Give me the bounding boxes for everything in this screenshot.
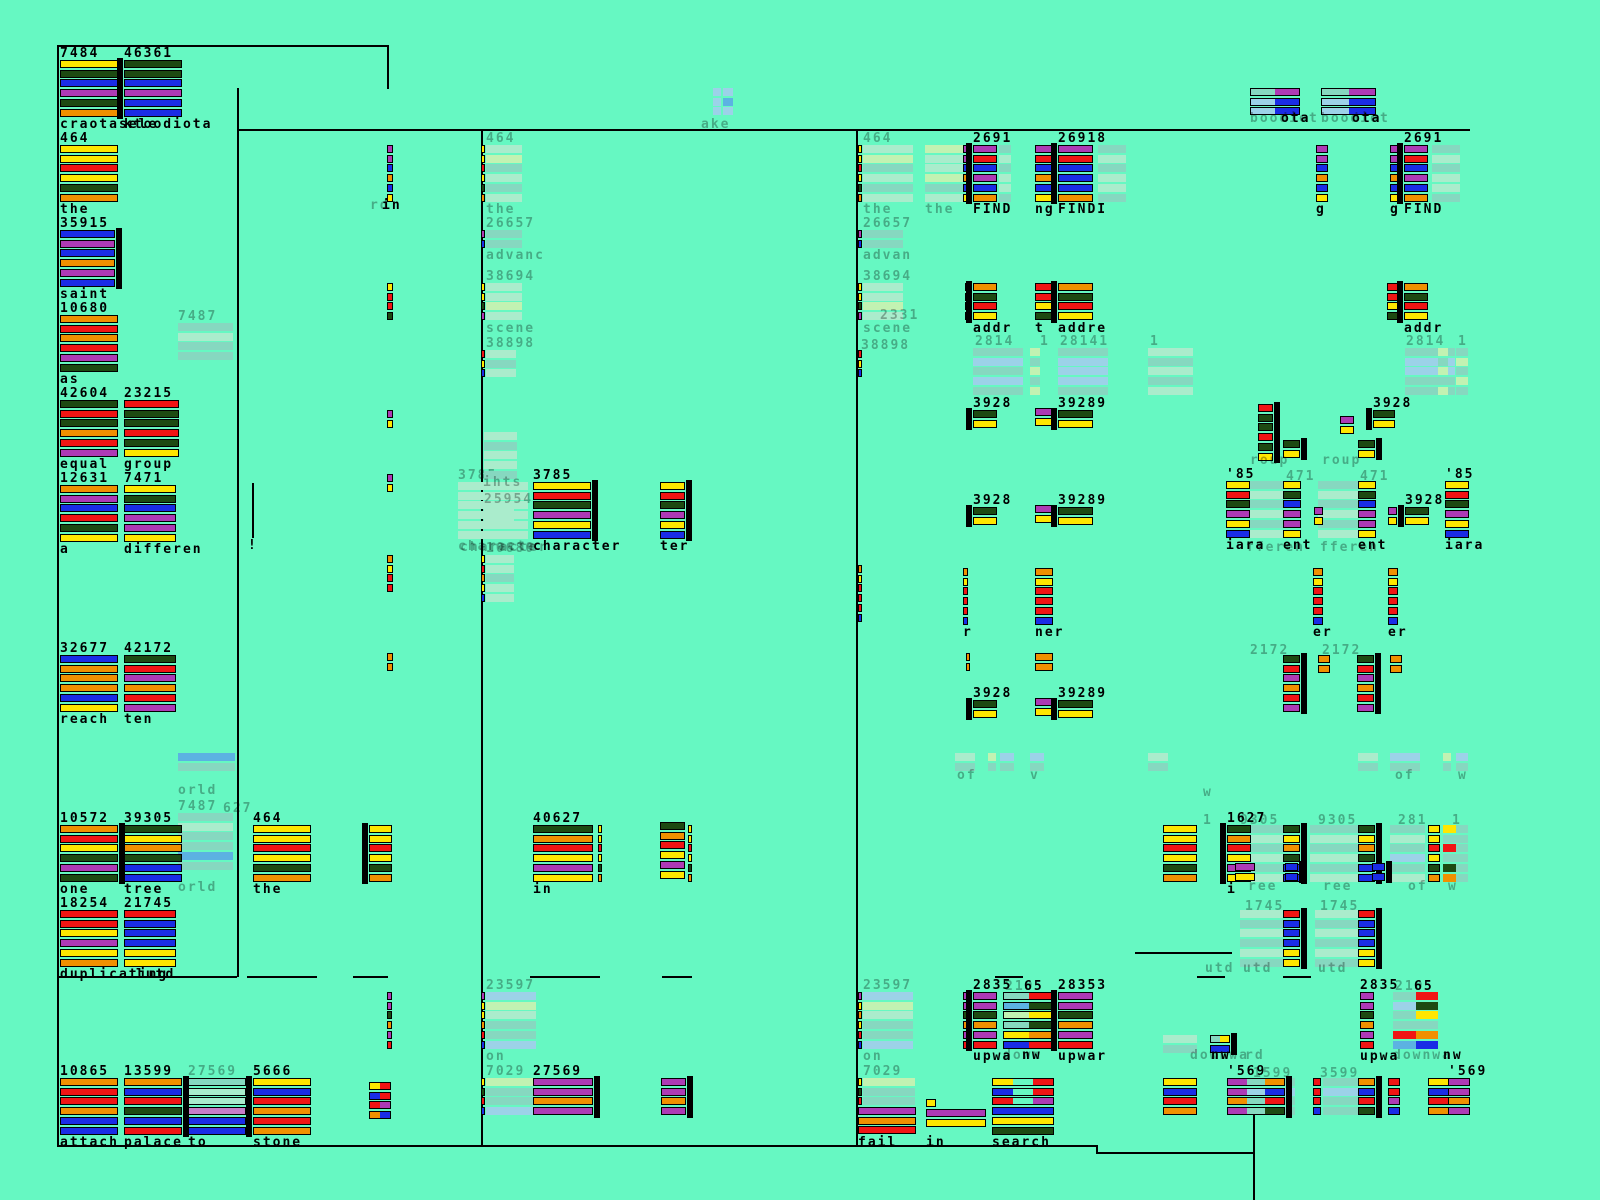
ghost-text: 1: [1458, 336, 1468, 347]
ghost-text: 281: [1398, 815, 1427, 826]
ghost-text: w: [1203, 787, 1213, 798]
ghost-text: 28141: [1060, 336, 1109, 347]
ghost-text: 1599: [1253, 1068, 1292, 1079]
text-label: nw: [1443, 1050, 1463, 1061]
text-label: !: [248, 540, 258, 551]
ghost-text: w: [1458, 770, 1468, 781]
ghost-text: 627: [223, 803, 252, 814]
ghost-text: of: [957, 770, 977, 781]
ghost-text: fferen: [1320, 542, 1379, 553]
texts-layer: rdinboodiototaboodiototaake233138898ihts…: [0, 0, 1600, 1200]
ghost-text: 2814: [975, 336, 1014, 347]
ghost-text: w: [1448, 881, 1458, 892]
ghost-text: 2172: [1322, 645, 1361, 656]
ghost-text: rd: [1245, 1050, 1265, 1061]
ghost-text: roup: [1322, 455, 1361, 466]
ghost-text: 9305: [1240, 815, 1279, 826]
text-label: nw: [1022, 1050, 1042, 1061]
text-label: 65: [1414, 981, 1434, 992]
ghost-text: roup: [1250, 455, 1289, 466]
ghost-text: utd: [1205, 963, 1234, 974]
ghost-text: 1745: [1320, 901, 1359, 912]
ghost-text: of: [1395, 770, 1415, 781]
text-label: nw: [1211, 1050, 1231, 1061]
text-label: 65: [1024, 981, 1044, 992]
ghost-text: 38898: [861, 340, 910, 351]
ghost-text: ree: [1248, 881, 1277, 892]
text-label: ota: [1352, 113, 1381, 124]
ghost-text: 1: [1452, 815, 1462, 826]
ghost-text: 1: [1150, 336, 1160, 347]
text-label: in: [382, 200, 402, 211]
ghost-text: 1: [1203, 815, 1213, 826]
ghost-text: 3599: [1320, 1068, 1359, 1079]
ghost-text: fferen: [1246, 542, 1305, 553]
ghost-text: ree: [1323, 881, 1352, 892]
ghost-text: 1: [1040, 336, 1050, 347]
ghost-text: 471: [1286, 471, 1315, 482]
ghost-text: utd: [1318, 963, 1347, 974]
ghost-text: ihts: [483, 477, 522, 488]
ghost-text: 2331: [880, 310, 919, 321]
ghost-text: 2814: [1406, 336, 1445, 347]
ghost-text: 2172: [1250, 645, 1289, 656]
word-card-collage: 3785characte464the26657advanc38694scene3…: [0, 0, 1600, 1200]
text-label: ota: [1281, 113, 1310, 124]
ghost-text: character: [460, 542, 548, 553]
ghost-text: of: [1408, 881, 1428, 892]
ghost-text: v: [1030, 770, 1040, 781]
ghost-text: 1745: [1245, 901, 1284, 912]
ghost-text: ake: [701, 119, 730, 130]
ghost-text: utd: [1243, 963, 1272, 974]
ghost-text: 9305: [1318, 815, 1357, 826]
ghost-text: 471: [1360, 471, 1389, 482]
